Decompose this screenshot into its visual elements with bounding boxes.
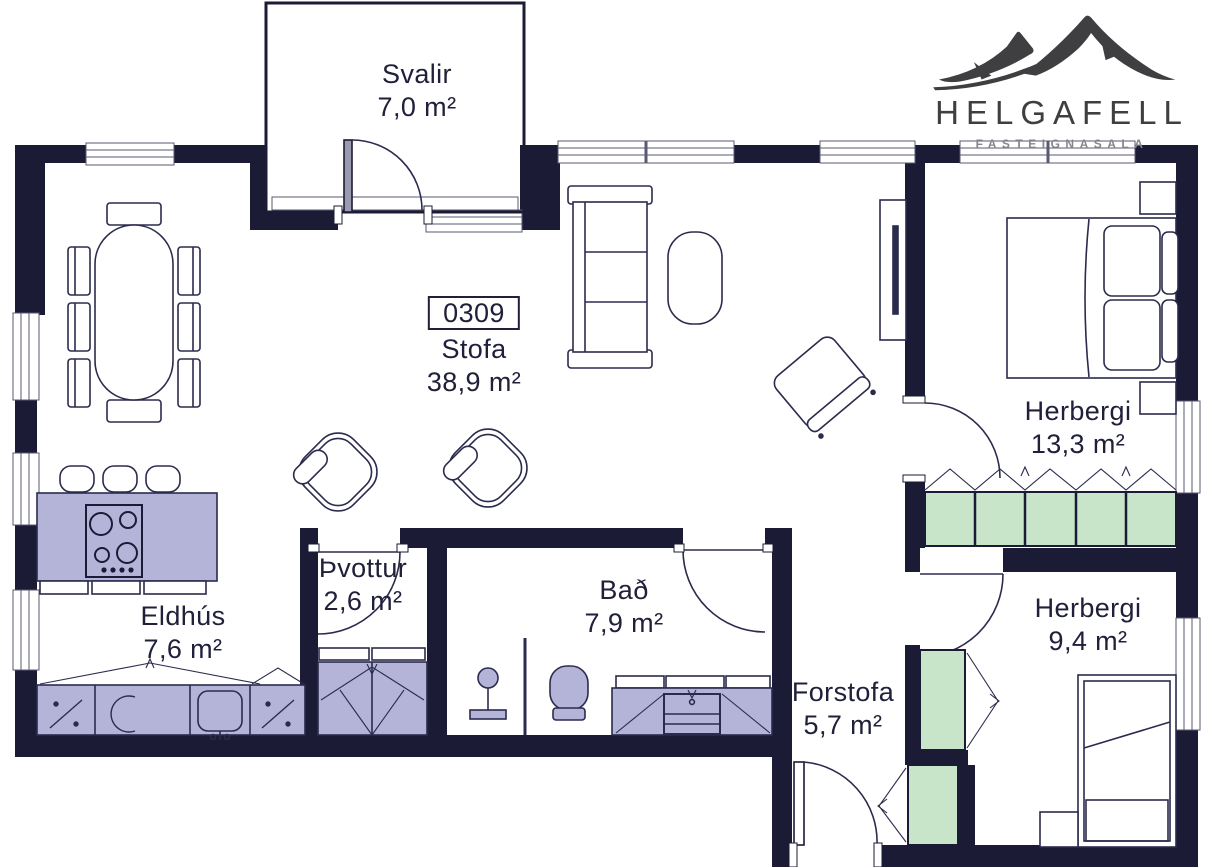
pillow: [1104, 226, 1160, 296]
pillow: [1162, 232, 1178, 294]
floor-plan-page: Svalir 7,0 m² 0309 Stofa 38,9 m² Herberg…: [0, 0, 1216, 867]
room-name: Herbergi: [1025, 395, 1132, 428]
room-name: Stofa: [427, 333, 521, 366]
room-name: Herbergi: [1035, 592, 1142, 625]
room-area: 13,3 m²: [1025, 428, 1132, 461]
dining-chair: [178, 303, 200, 351]
nightstand: [1140, 382, 1176, 414]
room-label-forstofa: Forstofa 5,7 m²: [792, 676, 894, 742]
dining-chair: [107, 203, 161, 225]
nightstand: [1140, 182, 1176, 214]
living-room: [289, 186, 906, 521]
room-name: Bað: [585, 574, 664, 607]
room-area: 2,6 m²: [319, 585, 407, 618]
toilet: [550, 666, 588, 720]
stove: [86, 505, 142, 577]
room-area: 9,4 m²: [1035, 625, 1142, 658]
pillow: [1162, 300, 1178, 362]
bedroom-1: [925, 182, 1178, 546]
room-label-bad: Bað 7,9 m²: [585, 574, 664, 640]
nightstand: [1040, 812, 1078, 847]
room-name: Eldhús: [141, 600, 226, 633]
room-label-stofa: 0309 Stofa 38,9 m²: [427, 296, 521, 399]
room-label-herbergi-2: Herbergi 9,4 m²: [1035, 592, 1142, 658]
double-bed: [1007, 218, 1178, 378]
pillow: [1104, 300, 1160, 370]
dining-chair: [107, 400, 161, 422]
dining-chair: [68, 247, 90, 295]
bedroom-2: [878, 650, 1176, 847]
dining-chair: [68, 303, 90, 351]
dining-chair: [178, 247, 200, 295]
lounge-chair: [439, 420, 537, 518]
dining-set: [68, 203, 200, 422]
sofa: [568, 186, 652, 368]
brand-tagline: FASTEIGNASALA: [918, 137, 1206, 151]
coffee-table: [668, 232, 722, 324]
armchair: [770, 333, 877, 440]
dining-chair: [68, 359, 90, 407]
closet: [920, 650, 999, 750]
closet: [878, 765, 958, 845]
bar-stool: [60, 466, 94, 492]
bathroom: [470, 638, 772, 735]
lounge-chair: [289, 424, 387, 522]
room-name: Þvottur: [319, 552, 407, 585]
room-name: Forstofa: [792, 676, 894, 709]
single-bed: [1078, 675, 1176, 847]
room-area: 7,6 m²: [141, 633, 226, 666]
brand-name: HELGAFELL: [918, 94, 1206, 132]
room-area: 5,7 m²: [792, 709, 894, 742]
kitchen-counter: [37, 685, 305, 735]
unit-number-badge: 0309: [428, 296, 520, 330]
mountain-logo-icon: [930, 4, 1194, 96]
room-label-herbergi-1: Herbergi 13,3 m²: [1025, 395, 1132, 461]
dining-chair: [178, 359, 200, 407]
room-area: 38,9 m²: [427, 366, 521, 399]
room-label-thvottur: Þvottur 2,6 m²: [319, 552, 407, 618]
room-area: 7,0 m²: [378, 91, 457, 124]
vanity: [612, 676, 772, 735]
tv-unit: [880, 200, 906, 340]
room-label-eldhus: Eldhús 7,6 m²: [141, 600, 226, 666]
bar-stool: [103, 466, 137, 492]
room-label-svalir: Svalir 7,0 m²: [378, 58, 457, 124]
dining-table: [95, 225, 173, 400]
shower: [470, 668, 506, 719]
laundry-machines: [318, 648, 427, 735]
room-name: Svalir: [378, 58, 457, 91]
room-area: 7,9 m²: [585, 607, 664, 640]
wardrobe: [925, 467, 1176, 546]
bar-stool: [146, 466, 180, 492]
brand-logo: HELGAFELL FASTEIGNASALA: [918, 4, 1206, 151]
